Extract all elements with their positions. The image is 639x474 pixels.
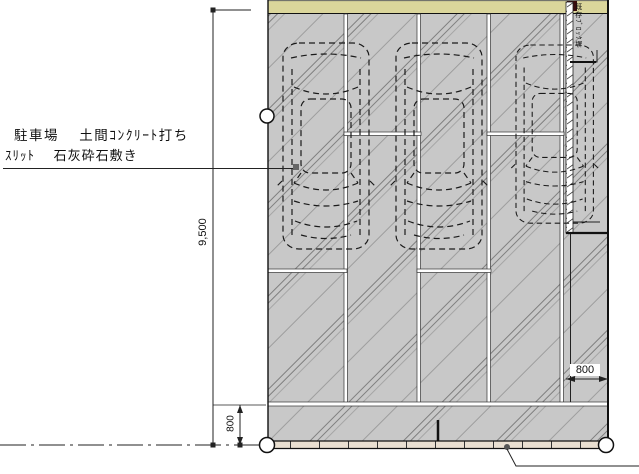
- area-label-line1: 駐車場 土間ｺﾝｸﾘｰﾄ打ち: [14, 129, 189, 144]
- dimension-800-bottom: [213, 405, 266, 445]
- label-leader: [3, 164, 299, 170]
- hedge-strip: [268, 0, 609, 14]
- parking-plan-drawing: [0, 0, 639, 474]
- dimension-9500: [211, 8, 251, 447]
- area-label-line2: ｽﾘｯﾄ 石灰砕石敷き: [5, 149, 138, 163]
- curb-edging: [268, 441, 609, 449]
- dimension-text-800-right: 800: [570, 364, 600, 376]
- block-wall-label: 既存ﾌﾞﾛｯｸ塀: [574, 3, 582, 49]
- dimension-text-9500: 9,500: [197, 210, 209, 254]
- dimension-text-800-bottom: 800: [226, 407, 237, 441]
- site-plan: 駐車場 土間ｺﾝｸﾘｰﾄ打ち ｽﾘｯﾄ 石灰砕石敷き 9,500 800 800…: [0, 0, 639, 474]
